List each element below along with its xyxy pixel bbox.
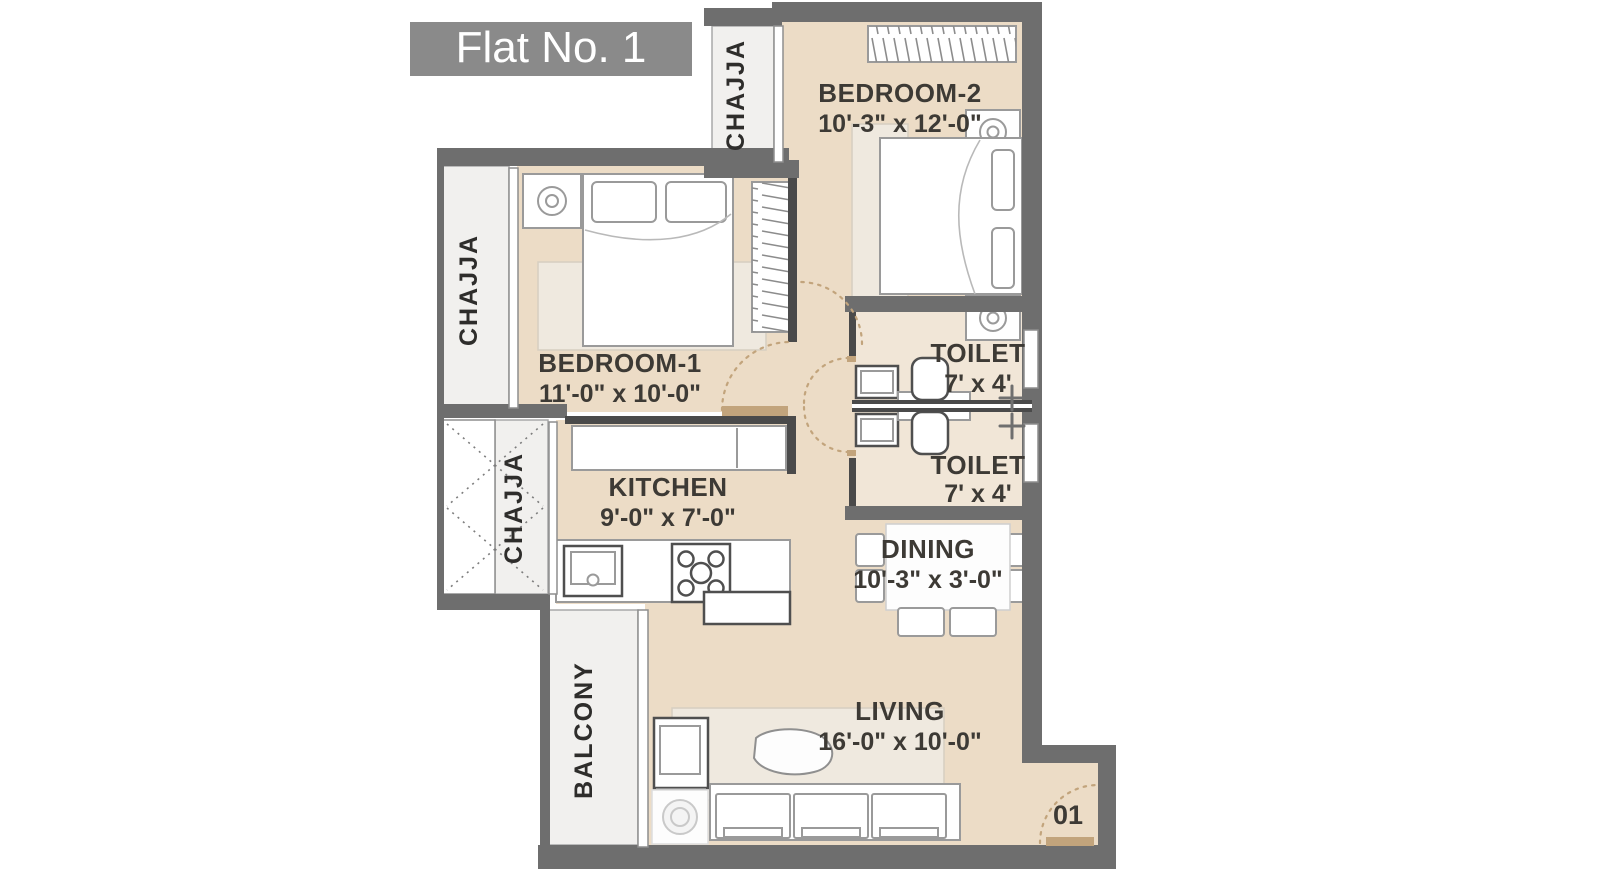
pillow-icon [992, 228, 1014, 288]
wall [437, 148, 444, 416]
main-door-threshold [1046, 837, 1094, 846]
window [774, 26, 783, 162]
bedroom2-label: BEDROOM-2 [818, 78, 981, 108]
wall [437, 404, 444, 610]
title-block: Flat No. 1 [410, 22, 692, 76]
bedroom1-label: BEDROOM-1 [538, 348, 701, 378]
duct-area [443, 420, 495, 594]
toilet-bottom-dims: 7' x 4' [944, 480, 1012, 508]
pillow-icon [592, 182, 656, 222]
bedroom2-dims: 10'-3" x 12'-0" [818, 110, 981, 138]
dining-chair-icon [856, 534, 884, 566]
partition-wall [852, 400, 1032, 404]
wall [1022, 2, 1042, 312]
partition-wall [565, 416, 795, 424]
partition-wall [852, 408, 1032, 412]
service-platform [704, 592, 790, 624]
living-dims: 16'-0" x 10'-0" [818, 728, 981, 756]
kitchen-label: KITCHEN [608, 472, 727, 502]
wall [704, 8, 782, 26]
chajja-kitchen-label: CHAJJA [500, 452, 528, 564]
balcony-door-window [638, 610, 648, 847]
wall [845, 506, 1042, 520]
dining-dims: 10'-3" x 3'-0" [853, 566, 1003, 594]
dining-chair-icon [898, 608, 944, 636]
wall [538, 845, 1116, 869]
chajja-top-label: CHAJJA [722, 39, 750, 151]
floor-plan-canvas: Flat No. 1 BEDROOM-2 10'-3" x 12'-0" BED… [0, 0, 1600, 889]
pillow-icon [666, 182, 726, 222]
wall [437, 594, 550, 610]
lamp-icon [663, 800, 697, 834]
toilet-window [1024, 330, 1038, 388]
page-title: Flat No. 1 [456, 23, 647, 72]
balcony-label: BALCONY [570, 661, 598, 799]
kitchen-dims: 9'-0" x 7'-0" [600, 504, 736, 532]
toilet-window [1024, 424, 1038, 482]
toilet-top-label: TOILET [931, 338, 1026, 368]
unit-number-label: 01 [1053, 800, 1083, 830]
toilet-bottom-label: TOILET [931, 450, 1026, 480]
wall [845, 296, 1042, 312]
wall [540, 610, 550, 847]
wall [1022, 745, 1116, 763]
floor-plan-page: Flat No. 1 BEDROOM-2 10'-3" x 12'-0" BED… [0, 0, 1600, 889]
toilet-top-dims: 7' x 4' [944, 370, 1012, 398]
window [509, 168, 518, 408]
pillow-icon [992, 150, 1014, 210]
living-label: LIVING [855, 696, 945, 726]
door-threshold [722, 406, 788, 416]
dining-label: DINING [881, 534, 975, 564]
partition-wall [788, 178, 797, 342]
bedroom1-dims: 11'-0" x 10'-0" [539, 380, 701, 408]
wall [1022, 508, 1042, 763]
wc-icon [912, 412, 948, 454]
chajja-left-label: CHAJJA [455, 234, 483, 346]
window [549, 422, 557, 594]
dining-chair-icon [950, 608, 996, 636]
living-floor-extension [1022, 763, 1042, 848]
wall [772, 2, 1042, 22]
wall [704, 160, 799, 178]
kitchen-counter-top [572, 426, 786, 470]
partition-wall [849, 458, 856, 506]
partition-wall [787, 416, 796, 474]
partition-wall [849, 312, 856, 358]
